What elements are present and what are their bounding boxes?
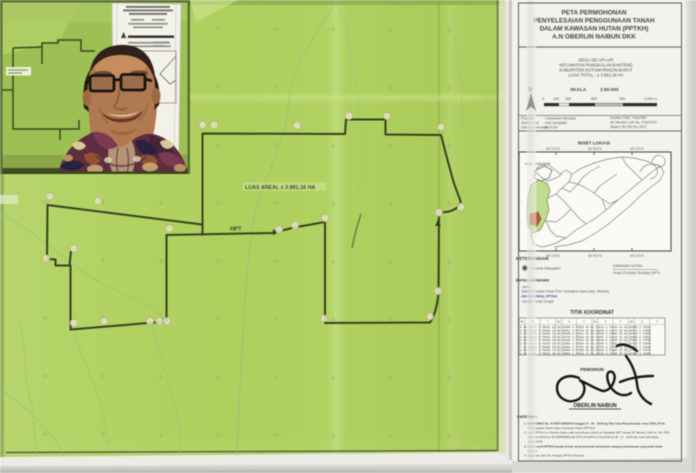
svg-text:PETA PERMOHONAN: PETA PERMOHONAN — [562, 10, 627, 17]
svg-text:9 98.29301 3.75910 18 98.3009: 9 98.29301 3.75910 18 98.30090 3.74488 2… — [520, 352, 651, 355]
svg-text:1.000 m: 1.000 m — [644, 97, 657, 101]
svg-text:98°40'0"E: 98°40'0"E — [588, 254, 602, 258]
svg-text:No: No — [520, 320, 524, 324]
svg-text:TITIK KOORDINAT: TITIK KOORDINAT — [570, 310, 614, 316]
svg-text:X: X — [568, 320, 570, 324]
svg-text:DALAM KAWASAN HUTAN (PPTKH): DALAM KAWASAN HUTAN (PPTKH) — [540, 26, 649, 33]
svg-text:98°40'0"E: 98°40'0"E — [588, 147, 602, 151]
svg-text:Hutan Produksi Terbatas (HPT): Hutan Produksi Terbatas (HPT) — [613, 271, 660, 275]
svg-text:KAWASAN HUTAN: KAWASAN HUTAN — [613, 264, 643, 268]
svg-text:No: No — [593, 320, 597, 324]
svg-text:Penguasaan Tanah dalam Kawasan: Penguasaan Tanah dalam Kawasan Hutan (PP… — [528, 426, 595, 430]
svg-text:3. Posisi areal PPTKH berada d: 3. Posisi areal PPTKH berada di luar are… — [524, 445, 662, 449]
svg-text:SK Menteri LHK No. P.62/2019: SK Menteri LHK No. P.62/2019 — [610, 121, 657, 125]
svg-text:250: 250 — [565, 97, 571, 101]
svg-text:: WGS 84: : WGS 84 — [543, 126, 558, 130]
svg-text:- Sungai / Anak Sungai: - Sungai / Anak Sungai — [520, 300, 554, 304]
svg-text:A.N OBERLIN NAIBUN DKK: A.N OBERLIN NAIBUN DKK — [552, 34, 636, 41]
svg-text:2. Luas PPTKH a.n Oberlin Naib: 2. Luas PPTKH a.n Oberlin Naibun dkk sel… — [524, 431, 670, 435]
svg-text:Skala 1:50.000 thn 2017: Skala 1:50.000 thn 2017 — [610, 125, 647, 129]
svg-text:99°10'0"E: 99°10'0"E — [630, 147, 644, 151]
svg-text:X: X — [605, 320, 607, 324]
svg-text:LUAS AREAL ± 3.891,16 HA: LUAS AREAL ± 3.891,16 HA — [245, 185, 316, 191]
svg-text:HPT: HPT — [230, 227, 242, 233]
svg-text:: Grid Geografis: : Grid Geografis — [543, 121, 567, 125]
svg-text:LUAS TOTAL : ± 3.891,16 HA: LUAS TOTAL : ± 3.891,16 HA — [568, 73, 623, 78]
svg-text:No: No — [630, 320, 634, 324]
svg-text:750: 750 — [619, 97, 625, 101]
svg-text:: Transverse Mercator: : Transverse Mercator — [543, 117, 577, 121]
svg-text:No: No — [557, 320, 561, 324]
svg-text:1:50.000: 1:50.000 — [600, 87, 619, 92]
svg-text:Y: Y — [656, 320, 658, 324]
svg-text:Y: Y — [620, 320, 622, 324]
svg-text:1. PERMENKO No. P.7/SETJEN/201: 1. PERMENKO No. P.7/SETJEN/2019 tanggal … — [524, 422, 665, 426]
svg-text:98°10'0"E: 98°10'0"E — [546, 147, 560, 151]
svg-text:- BATAS AREAL PPTKH: - BATAS AREAL PPTKH — [520, 295, 558, 299]
svg-text:99°10'0"E: 99°10'0"E — [630, 254, 644, 258]
svg-text:OBERLIN NAIBUN: OBERLIN NAIBUN — [573, 403, 617, 409]
svg-text:Y: Y — [583, 320, 585, 324]
svg-text:PEMOHON: PEMOHON — [580, 367, 604, 372]
svg-text:INSET LOKASI: INSET LOKASI — [578, 141, 610, 146]
svg-text:PENYELESAIAN PENGGUNAAN TANAH: PENYELESAIAN PENGGUNAAN TANAH — [533, 18, 655, 25]
svg-text:Y: Y — [547, 320, 549, 324]
svg-text:125: 125 — [553, 97, 559, 101]
svg-text:X: X — [641, 320, 643, 324]
svg-text:SKALA: SKALA — [570, 87, 587, 92]
svg-text:Menhut-II/2014 jo SK.8088/MENL: Menhut-II/2014 jo SK.8088/MENLHK-PKTL/KU… — [528, 435, 659, 439]
svg-text:0: 0 — [542, 97, 544, 101]
svg-text:500: 500 — [591, 97, 597, 101]
svg-text:Sumber Peta : Peta RBI: Sumber Peta : Peta RBI — [610, 116, 646, 120]
